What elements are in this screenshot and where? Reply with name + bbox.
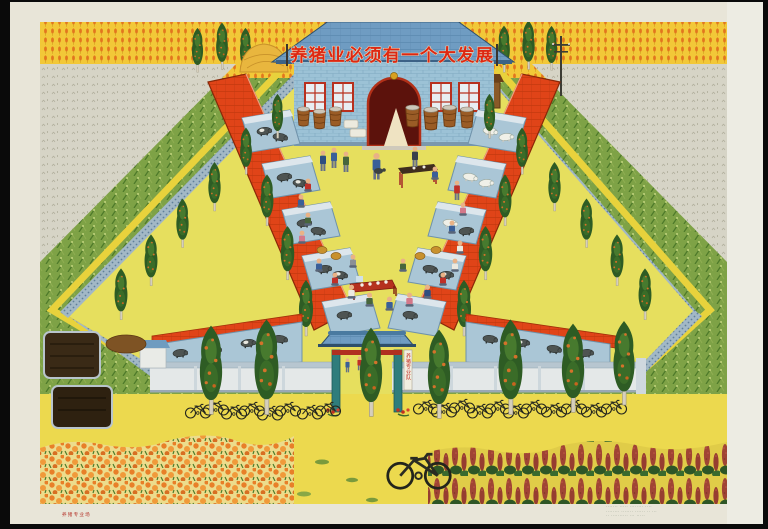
basket xyxy=(331,253,341,260)
banner-post-left xyxy=(286,44,288,66)
poster-artwork: 养猪业必须有一个大发展 xyxy=(0,0,768,529)
colophon-line-2: ········ ······· ······ ·· ··· xyxy=(606,510,657,514)
wall-end-pier xyxy=(636,358,646,394)
scanned-poster-image: 养猪业必须有一个大发展 xyxy=(0,0,768,529)
basket xyxy=(415,253,425,260)
feed-sack xyxy=(344,120,358,128)
marigold-field xyxy=(40,435,294,504)
piglet xyxy=(374,168,383,174)
colophon-line-1: ······· ····· ········ ···· xyxy=(606,505,652,509)
celosia-field xyxy=(428,441,727,504)
poster-caption: 养猪专业场 xyxy=(62,511,91,518)
colophon-line-3: ·· ·········· ··· ····· xyxy=(606,514,645,518)
gate-post-right xyxy=(394,350,402,412)
svg-text:养猪专业队: 养猪专业队 xyxy=(405,352,411,381)
basket xyxy=(431,247,441,254)
feed-sack xyxy=(350,129,366,137)
compost-heap xyxy=(106,335,146,353)
artwork-area: 养猪业必须有一个大发展 xyxy=(40,15,727,504)
poster-right-margin xyxy=(727,2,763,524)
emblem xyxy=(391,73,398,80)
banner-post-right xyxy=(496,44,498,66)
slogan-banner: 养猪业必须有一个大发展 xyxy=(289,45,494,65)
basket xyxy=(317,247,327,254)
gate-sign: 养猪专业队 xyxy=(404,350,412,390)
